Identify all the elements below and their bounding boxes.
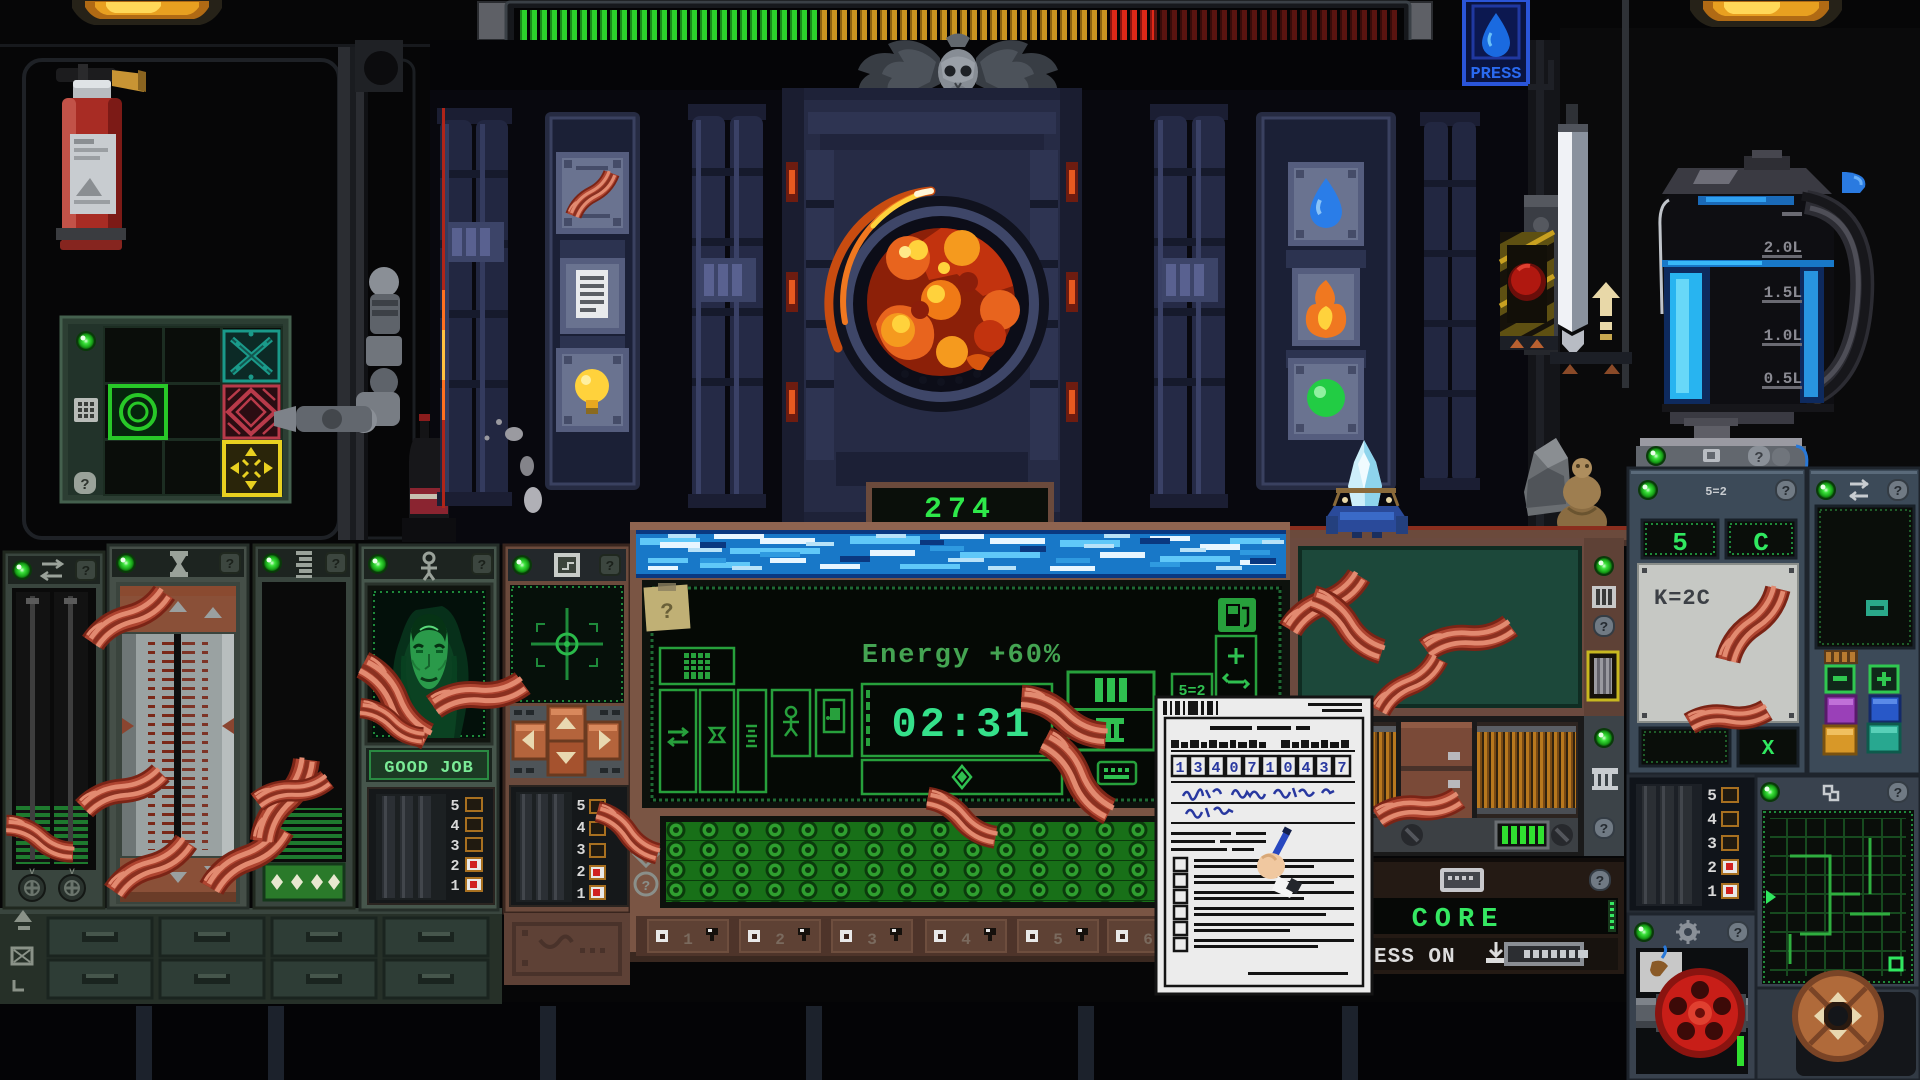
svg-text:1: 1 <box>576 886 585 903</box>
svg-text:02:31: 02:31 <box>891 701 1032 749</box>
svg-text:1: 1 <box>1175 760 1184 777</box>
svg-text:1: 1 <box>1707 883 1717 901</box>
svg-text:3: 3 <box>576 842 585 859</box>
svg-text:PRESS: PRESS <box>1470 65 1521 84</box>
svg-text:5: 5 <box>1707 787 1717 805</box>
svg-text:1: 1 <box>1265 760 1274 777</box>
svg-text:C: C <box>1753 528 1769 558</box>
svg-text:3: 3 <box>450 838 459 855</box>
svg-text:1: 1 <box>683 931 693 949</box>
svg-text:274: 274 <box>924 493 996 527</box>
svg-text:?: ? <box>642 879 650 895</box>
svg-text:0: 0 <box>1283 760 1292 777</box>
svg-text:4: 4 <box>1707 811 1717 829</box>
svg-text:5: 5 <box>1672 528 1688 558</box>
svg-text:3: 3 <box>1319 760 1328 777</box>
svg-text:CORE: CORE <box>1412 905 1505 935</box>
svg-text:ESS ON: ESS ON <box>1374 946 1456 969</box>
svg-text:6: 6 <box>1143 931 1153 949</box>
svg-text:0.5L: 0.5L <box>1764 370 1802 388</box>
svg-text:2: 2 <box>1707 859 1717 877</box>
svg-text:Energy +60%: Energy +60% <box>862 641 1062 671</box>
svg-text:4: 4 <box>1211 760 1220 777</box>
svg-text:1: 1 <box>450 878 459 895</box>
svg-text:3: 3 <box>1707 835 1717 853</box>
svg-text:5: 5 <box>1053 931 1063 949</box>
svg-text:X: X <box>1762 738 1775 761</box>
svg-text:1.5L: 1.5L <box>1764 284 1802 302</box>
svg-text:?: ? <box>1754 450 1763 467</box>
svg-text:2: 2 <box>775 931 785 949</box>
svg-text:3: 3 <box>867 931 877 949</box>
svg-text:2.0L: 2.0L <box>1764 239 1802 257</box>
svg-text:4: 4 <box>961 931 971 949</box>
svg-text:2: 2 <box>450 858 459 875</box>
svg-text:5: 5 <box>450 798 459 815</box>
svg-text:4: 4 <box>1301 760 1310 777</box>
svg-text:4: 4 <box>450 818 459 835</box>
svg-text:GOOD JOB: GOOD JOB <box>384 759 474 778</box>
svg-text:?: ? <box>80 477 89 494</box>
svg-text:7: 7 <box>1337 760 1346 777</box>
svg-text:5=2: 5=2 <box>1705 485 1727 499</box>
svg-text:?: ? <box>660 600 675 626</box>
svg-text:K=2C: K=2C <box>1654 586 1711 611</box>
svg-text:7: 7 <box>1247 760 1256 777</box>
svg-text:2: 2 <box>576 864 585 881</box>
svg-text:4: 4 <box>576 820 585 837</box>
svg-text:0: 0 <box>1229 760 1238 777</box>
svg-text:5: 5 <box>576 798 585 815</box>
svg-text:3: 3 <box>1193 760 1202 777</box>
svg-text:1.0L: 1.0L <box>1764 327 1802 345</box>
